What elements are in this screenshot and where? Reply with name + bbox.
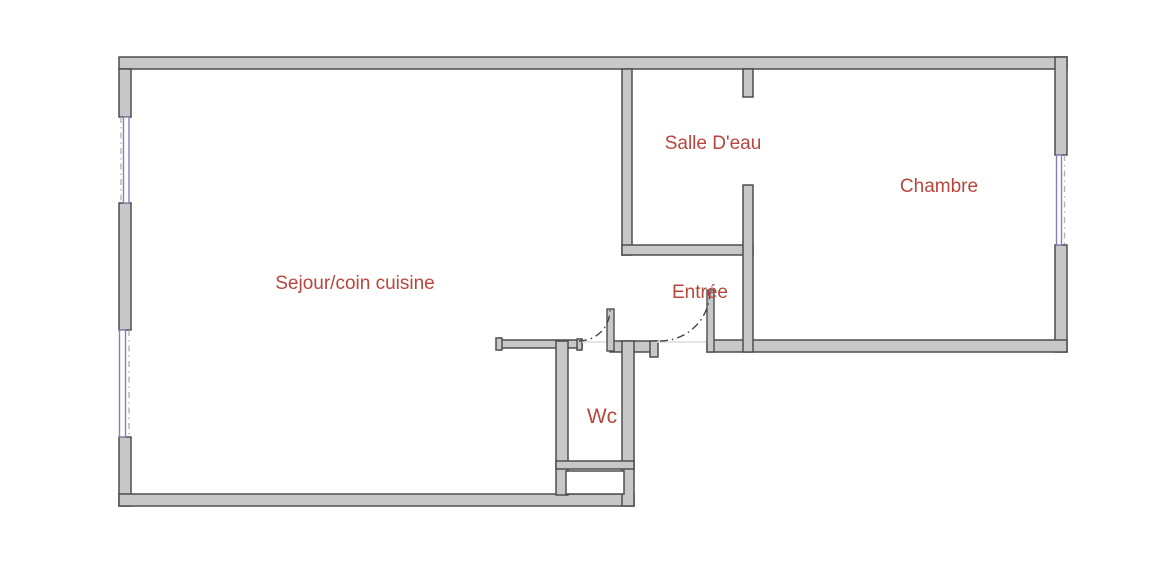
- floor-plan: Sejour/coin cuisine Salle D'eau Chambre …: [0, 0, 1175, 577]
- room-label-sejour: Sejour/coin cuisine: [275, 273, 434, 294]
- wall-exterior-bottom-left: [119, 494, 634, 506]
- wall-exterior-left-upper: [119, 69, 131, 117]
- wall-partial-left-cap: [496, 338, 502, 350]
- floor-plan-canvas: Sejour/coin cuisine Salle D'eau Chambre …: [0, 0, 1175, 577]
- wall-wc-divider: [556, 461, 634, 469]
- wall-partial-kitchen: [498, 340, 582, 348]
- wall-salle-deau-bottom: [622, 245, 753, 255]
- wall-exterior-right-upper: [1055, 57, 1067, 155]
- room-label-entree: Entrée: [672, 282, 728, 303]
- window-left-lower-icon: [120, 330, 126, 437]
- wall-exterior-left-middle: [119, 203, 131, 330]
- wall-chambre-west: [743, 185, 753, 352]
- wc-fixture-box: [566, 471, 624, 494]
- room-label-chambre: Chambre: [900, 176, 978, 197]
- wall-salle-deau-left: [622, 69, 632, 255]
- wall-chambre-west-stub: [743, 69, 753, 97]
- wall-chambre-bottom: [707, 340, 1067, 352]
- door-jamb-entry-left: [650, 341, 658, 357]
- room-label-salle-deau: Salle D'eau: [665, 133, 762, 154]
- window-left-upper-icon: [124, 117, 130, 203]
- room-label-wc: Wc: [587, 405, 617, 428]
- window-right-icon: [1057, 155, 1062, 245]
- door-arc-wc: [579, 310, 610, 341]
- door-leaf-wc: [607, 309, 614, 351]
- wall-exterior-right-lower: [1055, 245, 1067, 352]
- wall-exterior-top: [119, 57, 1067, 69]
